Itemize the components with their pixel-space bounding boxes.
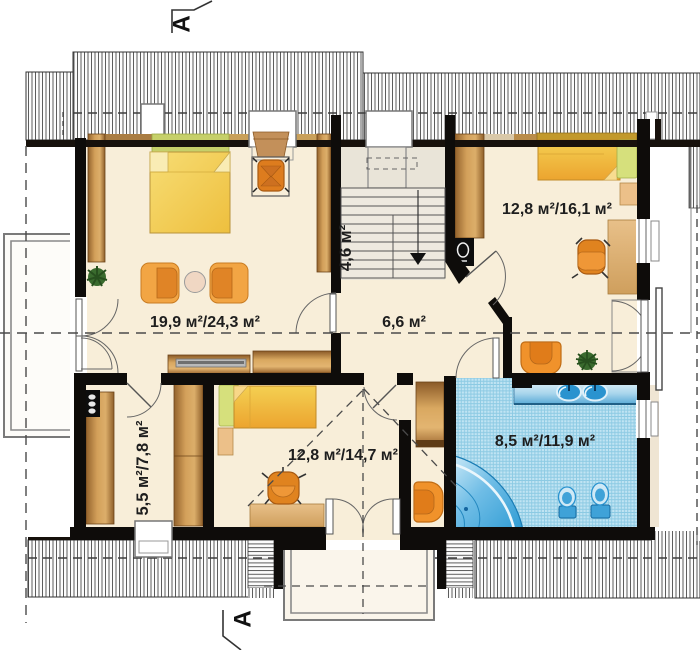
svg-text:6,6 м²: 6,6 м² — [382, 314, 426, 331]
svg-text:4,6 м²: 4,6 м² — [336, 224, 355, 271]
svg-text:12,8 м²/14,7 м²: 12,8 м²/14,7 м² — [288, 447, 398, 464]
svg-text:8,5 м²/11,9 м²: 8,5 м²/11,9 м² — [495, 433, 595, 450]
svg-text:5,5 м²/7,8 м²: 5,5 м²/7,8 м² — [134, 420, 152, 516]
svg-text:12,8 м²/16,1 м²: 12,8 м²/16,1 м² — [502, 201, 612, 218]
svg-text:A: A — [168, 15, 195, 32]
svg-text:A: A — [229, 610, 256, 627]
svg-text:19,9 м²/24,3 м²: 19,9 м²/24,3 м² — [150, 314, 260, 331]
